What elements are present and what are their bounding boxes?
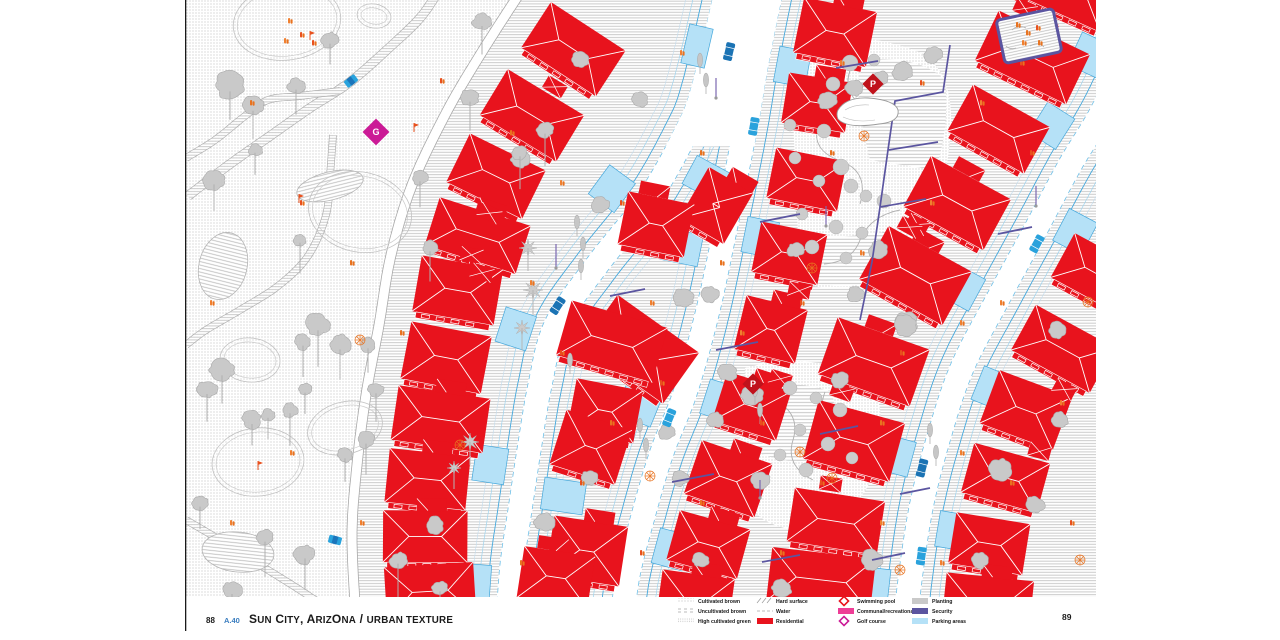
svg-text:High cultivated green: High cultivated green xyxy=(698,619,751,625)
svg-text:Uncultivated brown: Uncultivated brown xyxy=(698,609,746,615)
svg-text:Cultivated brown: Cultivated brown xyxy=(698,599,740,605)
svg-text:Communal/recreational: Communal/recreational xyxy=(857,609,915,615)
svg-text:88: 88 xyxy=(206,616,215,625)
svg-text:Golf course: Golf course xyxy=(857,619,886,625)
svg-text:SUN CITY, ARIZONA / URBAN TEXT: SUN CITY, ARIZONA / URBAN TEXTURE xyxy=(249,612,453,626)
svg-text:Parking areas: Parking areas xyxy=(932,619,966,625)
svg-text:P: P xyxy=(870,79,876,89)
svg-text:Hard surface: Hard surface xyxy=(776,599,808,605)
svg-text:G: G xyxy=(372,127,379,137)
svg-text:P: P xyxy=(750,379,756,389)
svg-text:A.40: A.40 xyxy=(224,616,240,625)
svg-text:Planting: Planting xyxy=(932,599,952,605)
svg-text:Swimming pool: Swimming pool xyxy=(857,599,896,605)
svg-text:Residential: Residential xyxy=(776,619,804,625)
svg-text:89: 89 xyxy=(1062,612,1072,622)
svg-text:Security: Security xyxy=(932,609,953,615)
svg-text:Water: Water xyxy=(776,609,790,615)
